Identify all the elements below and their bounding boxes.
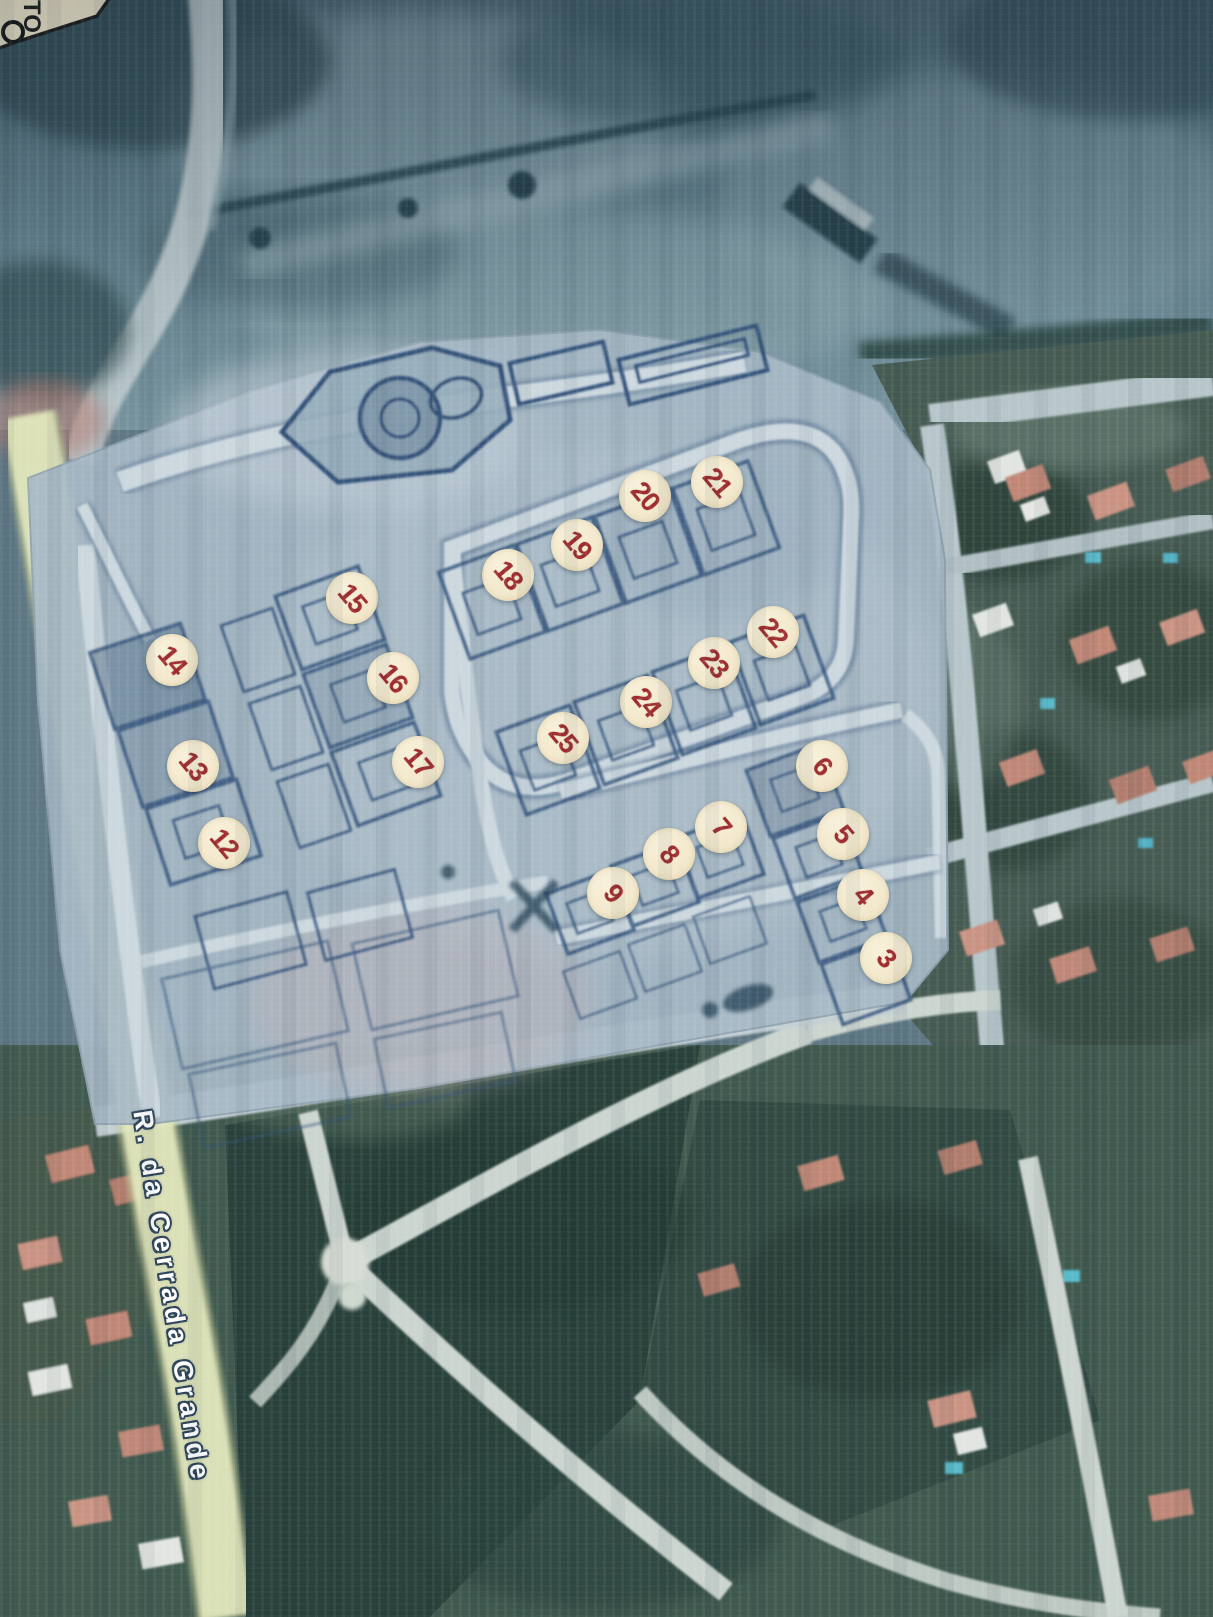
lot-number: 15 — [331, 577, 373, 618]
printed-map-photo: TO 34567891213141516171819202122232425 R… — [0, 0, 1213, 1617]
lot-marker-16: 16 — [367, 652, 419, 704]
lot-number: 4 — [847, 880, 880, 911]
lot-marker-15: 15 — [326, 572, 378, 624]
lot-number: 22 — [752, 611, 794, 652]
lot-marker-13: 13 — [167, 740, 219, 792]
lot-number: 8 — [653, 839, 686, 870]
lot-number: 25 — [542, 717, 584, 758]
lot-marker-9: 9 — [587, 867, 639, 919]
lot-number: 18 — [487, 554, 529, 595]
lot-marker-23: 23 — [688, 637, 740, 689]
lot-number: 13 — [172, 745, 214, 786]
lot-number: 16 — [372, 657, 414, 698]
lot-number: 5 — [827, 819, 860, 850]
lot-marker-20: 20 — [619, 470, 671, 522]
lot-number: 20 — [624, 475, 666, 516]
lot-marker-24: 24 — [620, 676, 672, 728]
lot-marker-18: 18 — [482, 549, 534, 601]
lot-number: 6 — [806, 751, 839, 782]
lot-marker-21: 21 — [691, 456, 743, 508]
lot-marker-4: 4 — [837, 869, 889, 921]
lot-number: 12 — [203, 822, 245, 863]
lot-number: 7 — [705, 812, 738, 843]
lot-marker-12: 12 — [198, 817, 250, 869]
lot-marker-17: 17 — [392, 736, 444, 788]
lot-marker-8: 8 — [643, 828, 695, 880]
lot-marker-7: 7 — [695, 801, 747, 853]
lot-number: 23 — [693, 642, 735, 683]
lot-number: 21 — [696, 461, 738, 502]
lot-number: 3 — [870, 943, 903, 974]
lot-number: 24 — [625, 681, 667, 722]
lot-marker-14: 14 — [146, 634, 198, 686]
lot-marker-6: 6 — [796, 740, 848, 792]
lot-number: 17 — [397, 741, 439, 782]
lot-marker-19: 19 — [551, 519, 603, 571]
lot-number: 9 — [597, 878, 630, 909]
lot-number: 14 — [151, 639, 193, 680]
lot-number: 19 — [556, 524, 598, 565]
lot-marker-22: 22 — [747, 606, 799, 658]
lot-marker-25: 25 — [537, 712, 589, 764]
lot-marker-3: 3 — [860, 932, 912, 984]
lot-marker-5: 5 — [817, 808, 869, 860]
